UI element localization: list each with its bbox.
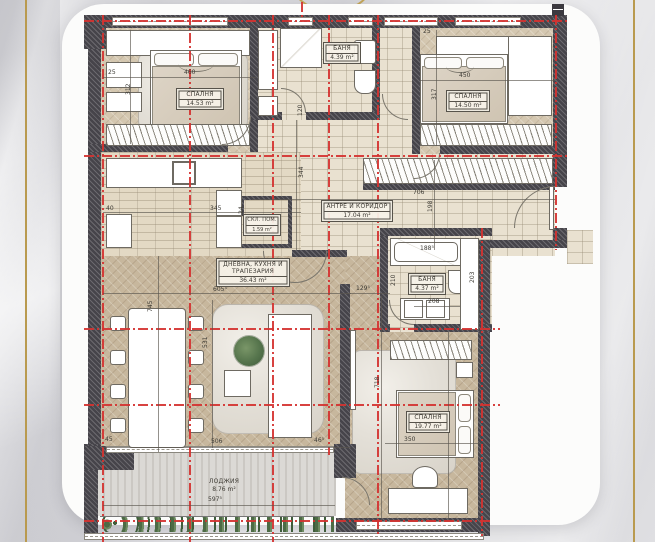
dimension: 24	[239, 206, 245, 214]
kitchen-counter-side	[216, 216, 242, 248]
dim-line	[103, 505, 335, 506]
wall-storage-right	[288, 196, 292, 248]
loggia-railing	[84, 533, 484, 540]
dimension: 706	[413, 190, 424, 196]
dimension: 25	[108, 70, 116, 76]
bath-1-shower	[280, 28, 322, 68]
room-area: 17.04 m²	[324, 212, 390, 220]
room-name: БАНЯ	[411, 276, 443, 285]
dimension: 312	[126, 84, 132, 95]
bedroom-1-nightstand	[106, 92, 142, 112]
pillow	[458, 394, 471, 422]
axis-line	[481, 228, 483, 536]
wall-step	[480, 240, 567, 248]
room-area: 19.77 m²	[409, 423, 447, 431]
kitchen-fridge	[106, 214, 132, 248]
hall-cabinet	[258, 30, 278, 90]
axis-line	[102, 15, 104, 542]
dim-line	[252, 199, 555, 200]
room-name: СПАЛНЯ	[449, 93, 487, 102]
dimension: 350	[404, 437, 415, 443]
wall-bath1-left	[250, 26, 258, 120]
dining-chair	[110, 350, 126, 365]
room-name: ДНЕВНА, КУХНЯ И ТРАПЕЗАРИЯ	[219, 261, 287, 277]
axis-line	[84, 520, 490, 522]
axis-line	[84, 328, 500, 330]
room-label-hall: АНТРЕ И КОРИДОР 17.04 m²	[321, 200, 393, 222]
axis-line	[84, 155, 570, 157]
hall-cabinet	[258, 96, 278, 116]
dim-line	[434, 160, 435, 250]
passage-floor	[345, 256, 385, 332]
axis-line	[328, 15, 330, 455]
room-name: СПАЛНЯ	[179, 91, 221, 100]
dimension: 745	[148, 301, 154, 312]
dimension: 210	[391, 275, 397, 286]
dimension: 129⁵	[356, 286, 370, 292]
room-label-storage: СКЛ. ПОМ. 1.59 m²	[243, 214, 281, 236]
room-label-bedroom-3: СПАЛНЯ 19.77 m²	[406, 411, 450, 433]
room-area: 14.53 m²	[179, 100, 221, 108]
dimension: 506	[211, 439, 222, 445]
room-name: СКЛ. ПОМ.	[246, 217, 278, 226]
room-area: 14.50 m²	[449, 102, 487, 110]
dimension: 198	[428, 201, 434, 212]
dim-line	[296, 120, 297, 250]
bath-1-toilet	[354, 70, 376, 94]
dimension: 317	[432, 89, 438, 100]
vent-marker	[552, 4, 564, 16]
coffee-table	[224, 370, 251, 397]
dimension: 718	[375, 377, 381, 388]
dim-line	[385, 443, 482, 444]
tv-unit	[350, 330, 356, 410]
wall-loggia-right-pier	[334, 444, 356, 478]
dining-chair	[110, 384, 126, 399]
room-label-bath-2: БАНЯ 4.37 m²	[408, 273, 446, 295]
kitchen-sink	[172, 161, 196, 185]
axis-line	[555, 15, 557, 250]
dining-chair	[110, 418, 126, 433]
dim-line	[103, 447, 351, 448]
gold-border-right	[633, 0, 635, 542]
wall-bath2-top	[380, 228, 492, 236]
room-label-bedroom-1: СПАЛНЯ 14.53 m²	[176, 88, 224, 110]
gold-border-left	[25, 0, 27, 542]
dim-line	[103, 77, 256, 78]
wall-left	[88, 15, 101, 447]
floor-plan-page: 460 312 25 450 317 25 344 706 198 40 345…	[0, 0, 655, 542]
loggia-planters	[100, 516, 334, 532]
axis-line	[84, 404, 500, 406]
dimension: 46⁵	[314, 438, 324, 444]
wall-bath1-bottom-b	[306, 112, 380, 120]
room-area: 1.59 m²	[246, 226, 278, 234]
pillow	[458, 426, 471, 454]
dimension: 188⁵	[420, 246, 434, 252]
dimension: 460	[184, 70, 195, 76]
dimension: 344	[299, 167, 305, 178]
room-label-bath-1: БАНЯ 4.39 m²	[323, 42, 361, 64]
axis-line	[377, 15, 379, 536]
dimension: 345	[210, 206, 221, 212]
dim-line	[414, 306, 460, 307]
bedroom-3-desk	[388, 488, 468, 514]
washer-stack	[460, 238, 479, 330]
room-label-living: ДНЕВНА, КУХНЯ И ТРАПЕЗАРИЯ 36.43 m²	[216, 258, 290, 287]
dimension: 25	[423, 29, 431, 35]
window-bedroom3	[356, 521, 462, 530]
dim-line	[345, 293, 390, 294]
dimension: 40	[106, 206, 114, 212]
dimension: 120	[298, 105, 304, 116]
room-area: 4.39 m²	[326, 54, 358, 62]
bedroom-2-wardrobe	[420, 124, 552, 146]
axis-line	[84, 20, 570, 22]
room-area: 36.43 m²	[219, 277, 287, 285]
dim-line	[212, 300, 213, 448]
dimension: 531	[203, 337, 209, 348]
dim-line	[420, 80, 555, 81]
entry-door-leaf	[549, 186, 554, 230]
sofa	[268, 314, 312, 438]
dimension: 450	[459, 73, 470, 79]
dimension: 208	[428, 299, 439, 305]
wall-right-lower	[478, 240, 490, 536]
bedroom-2-cabinet	[508, 36, 552, 116]
room-name: СПАЛНЯ	[409, 414, 447, 423]
wall-bedroom2-bottom	[440, 146, 567, 154]
room-label-bedroom-2: СПАЛНЯ 14.50 m²	[446, 90, 490, 112]
marble-texture	[0, 0, 60, 542]
room-area: 4.37 m²	[411, 285, 443, 293]
dim-line	[103, 293, 351, 294]
room-name: БАНЯ	[326, 45, 358, 54]
dim-line	[103, 212, 301, 213]
dimension: 45	[105, 437, 113, 443]
dimension: 605⁵	[213, 287, 227, 293]
hall-wardrobe	[363, 158, 553, 184]
wall-living-divider	[340, 284, 350, 448]
entry-landing	[567, 230, 593, 264]
room-name: АНТРЕ И КОРИДОР	[324, 203, 390, 212]
wall-hall-wardrobe	[363, 184, 555, 190]
plant	[234, 336, 264, 366]
wall-bedroom1-bottom-b	[250, 144, 258, 152]
dim-line	[158, 256, 159, 452]
axis-tick	[301, 2, 303, 20]
bedroom-3-wardrobe	[390, 340, 472, 360]
desk-chair	[412, 466, 438, 488]
dimension: 203	[470, 272, 476, 283]
room-label-loggia: ЛОДЖИЯ 8.76 m²	[196, 476, 252, 495]
wall-storage-bottom	[240, 244, 292, 248]
dim-line	[381, 296, 382, 520]
room-name: ЛОДЖИЯ	[198, 478, 250, 486]
room-area: 8.76 m²	[198, 486, 250, 494]
wall-bedroom2-left	[412, 26, 420, 154]
bedroom-3-nightstand	[456, 362, 473, 378]
dimension: 597⁵	[208, 497, 222, 503]
